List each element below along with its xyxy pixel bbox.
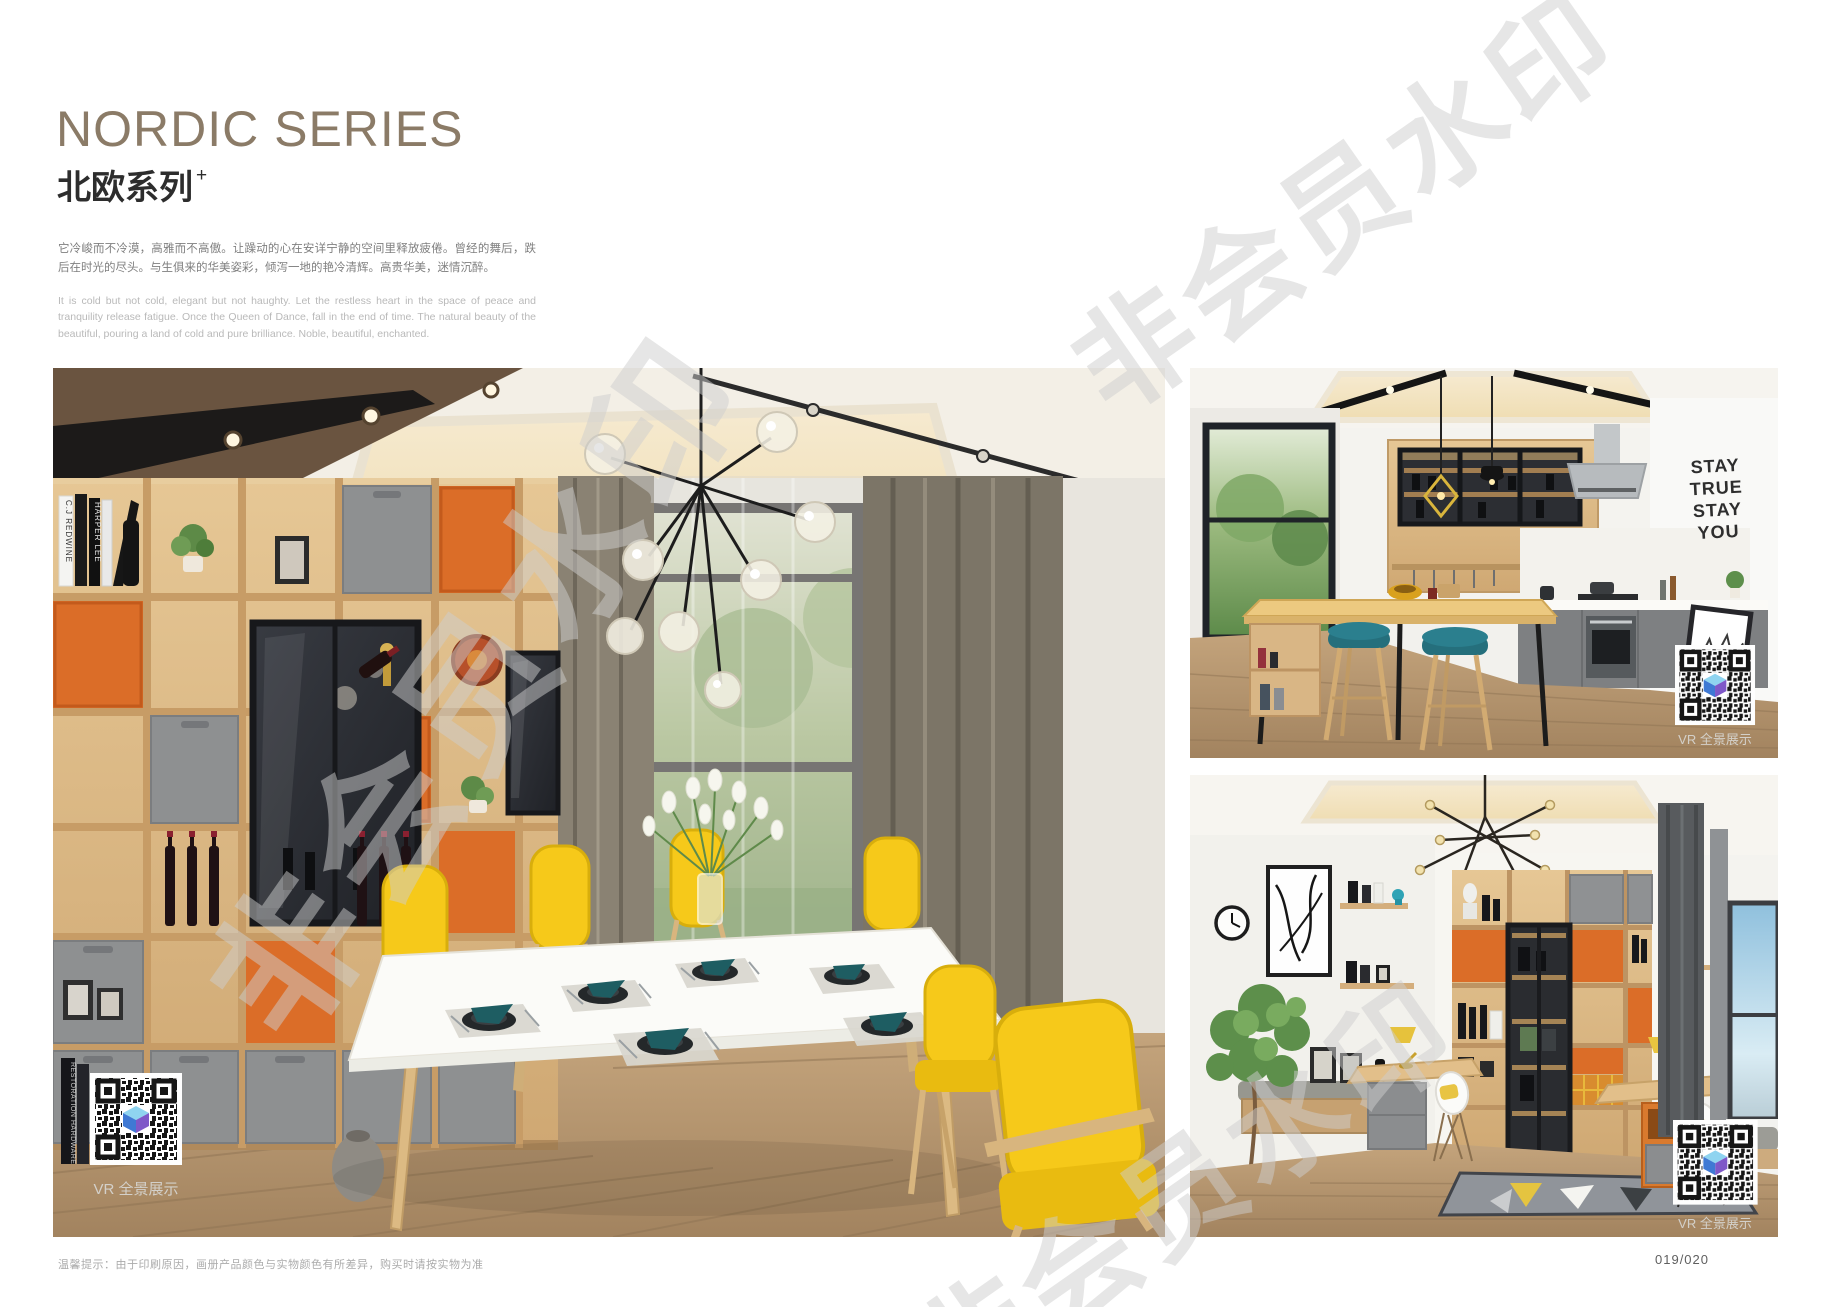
kitchen-photo: STAY TRUE STAY YOU	[1190, 368, 1778, 758]
vr-panorama-label: VR 全景展示	[1678, 732, 1752, 747]
built-in-oven	[1586, 616, 1636, 678]
qr-code	[1675, 645, 1755, 725]
book-spine-label: HARPER LEE	[93, 502, 102, 563]
qr-code	[90, 1073, 182, 1165]
wall-clock	[1216, 907, 1248, 939]
glass-display-cabinet-right	[508, 653, 558, 813]
curtains	[1658, 803, 1728, 1137]
page-subtitle: 北欧系列+	[57, 160, 207, 209]
qr-code	[1673, 1120, 1758, 1205]
shelf-unit	[1250, 624, 1320, 716]
book-spine-label: C.J REDWINE	[64, 500, 73, 563]
decal-word: STAY	[1692, 499, 1742, 522]
qr-books: RESTORATION HARDWARE	[61, 1058, 89, 1164]
catalog-page: NORDIC SERIES 北欧系列+ 它冷峻而不冷漠，高雅而不高傲。让躁动的心…	[0, 0, 1836, 1307]
page-number: 019/020	[1655, 1252, 1709, 1267]
decal-word: YOU	[1697, 521, 1740, 543]
dining-room-photo: C.J REDWINE HARPER LEE	[53, 368, 1165, 1237]
side-wall	[1063, 478, 1165, 1078]
page-subtitle-text: 北欧系列	[57, 169, 193, 207]
subtitle-plus-mark: +	[196, 165, 207, 186]
decal-word: TRUE	[1689, 477, 1743, 500]
decal-word: STAY	[1690, 455, 1740, 478]
intro-paragraph-en: It is cold but not cold, elegant but not…	[58, 293, 536, 343]
print-disclaimer: 温馨提示：由于印刷原因，画册产品颜色与实物颜色有所差异，购买时请按实物为准	[58, 1256, 484, 1272]
display-cabinet	[1508, 925, 1570, 1163]
book-spine-label: RESTORATION HARDWARE	[69, 1062, 76, 1164]
study-room-photo: VR 全景展示	[1190, 775, 1778, 1237]
window	[1726, 903, 1778, 1127]
vr-panorama-label: VR 全景展示	[93, 1180, 178, 1198]
bookcase	[1452, 870, 1652, 1165]
vr-panorama-label: VR 全景展示	[1678, 1216, 1752, 1231]
abstract-art-frame	[1268, 867, 1330, 975]
page-title: NORDIC SERIES	[56, 100, 464, 158]
intro-paragraph-cn: 它冷峻而不冷漠，高雅而不高傲。让躁动的心在安详宁静的空间里释放疲倦。曾经的舞后，…	[58, 240, 536, 278]
